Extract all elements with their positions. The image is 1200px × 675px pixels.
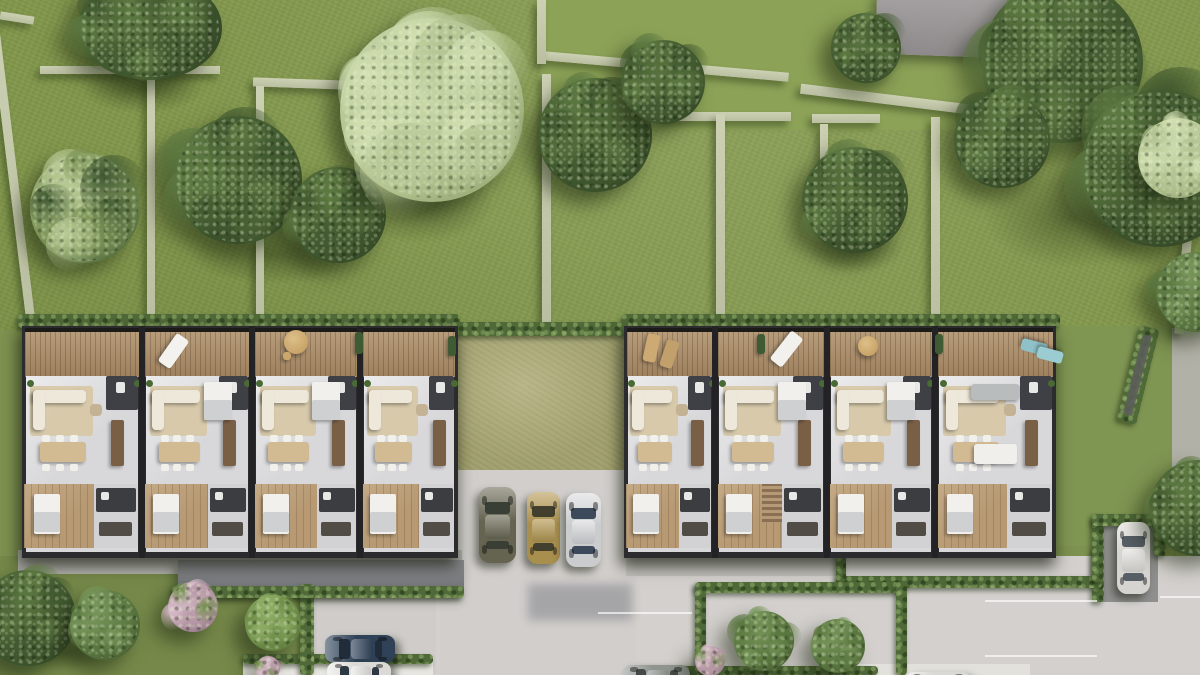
tree-canopy-texture: [804, 149, 906, 251]
tree-canopy-texture: [176, 118, 299, 241]
bed-blanket: [778, 400, 806, 420]
tree: [255, 655, 281, 675]
car-wheel: [593, 502, 598, 511]
sink: [898, 492, 906, 500]
car-wheel: [508, 496, 513, 505]
wardrobe: [896, 522, 926, 536]
tree: [1152, 248, 1200, 336]
dining-chair: [870, 464, 878, 471]
tree: [809, 617, 867, 675]
dining-chair: [70, 464, 78, 471]
block-east: [624, 326, 1056, 558]
dining-table: [732, 442, 775, 462]
dining-chair: [983, 464, 991, 471]
plant: [27, 380, 34, 387]
car-rear-glass: [533, 543, 554, 551]
dining-chair: [956, 435, 964, 442]
sink: [323, 492, 331, 500]
dining-chair: [660, 435, 668, 442]
sink: [425, 492, 433, 500]
wardrobe: [212, 522, 243, 536]
kitchen-island: [223, 420, 236, 466]
car-wheel: [1120, 577, 1125, 586]
sofa-gray: [971, 384, 1019, 400]
terrace-rail: [255, 328, 357, 332]
dining-chair: [173, 435, 181, 442]
stone-wall: [0, 11, 34, 24]
dining-chair: [747, 435, 755, 442]
sofa-chaise: [725, 390, 737, 430]
dining-chair: [186, 435, 194, 442]
pouf: [416, 404, 428, 416]
terrace-rail: [938, 328, 1053, 332]
terrace-deck: [363, 331, 455, 377]
tree: [950, 88, 1054, 192]
plant: [940, 380, 947, 387]
tree: [166, 580, 220, 634]
tree: [731, 608, 797, 674]
dining-table: [40, 442, 86, 462]
terrace-rail: [830, 328, 932, 332]
wardrobe: [321, 522, 351, 536]
tree: [617, 36, 709, 128]
dining-chair: [70, 435, 78, 442]
pouf: [676, 404, 688, 416]
dining-chair: [969, 464, 977, 471]
dining-chair: [283, 464, 291, 471]
sink: [1015, 492, 1023, 500]
hedge: [1092, 548, 1102, 582]
terrace-rail: [718, 328, 824, 332]
kitchen-island: [111, 420, 124, 466]
car-wheel: [593, 549, 598, 558]
dining-chair: [650, 435, 658, 442]
unit: [827, 326, 935, 558]
sink: [215, 492, 223, 500]
car-gold: [527, 492, 560, 564]
car-windshield: [340, 666, 350, 675]
car-wheel: [482, 545, 487, 554]
tree-canopy-texture: [812, 620, 863, 671]
staircase: [762, 484, 782, 522]
bed-blanket: [370, 512, 396, 532]
party-wall: [139, 326, 145, 558]
wardrobe: [99, 522, 133, 536]
plant: [628, 380, 635, 387]
stone-wall: [931, 117, 940, 329]
terrace-rail: [363, 328, 455, 332]
tree-canopy-texture: [1157, 253, 1200, 330]
car-wheel: [508, 545, 513, 554]
paving: [528, 584, 632, 620]
dining-chair: [845, 435, 853, 442]
stone-wall: [537, 0, 546, 64]
dining-chair: [760, 435, 768, 442]
dining-chair: [956, 464, 964, 471]
bed-blanket: [726, 512, 752, 532]
wardrobe: [423, 522, 450, 536]
tree: [1146, 456, 1200, 560]
car-rear-glass: [486, 541, 510, 549]
dining-chair: [388, 435, 396, 442]
hedge: [452, 322, 632, 336]
terrace-deck: [25, 331, 139, 377]
car-wheel: [1143, 577, 1148, 586]
terrace-rail: [25, 328, 139, 332]
car-windshield: [571, 508, 596, 519]
car-roof: [351, 667, 371, 675]
dining-table-white: [974, 444, 1018, 464]
car-gray: [622, 627, 690, 657]
bath-fixture: [695, 382, 704, 393]
dining-chair: [870, 435, 878, 442]
pouf: [1004, 404, 1016, 416]
car-body: [566, 493, 601, 567]
sofa-chaise: [33, 390, 45, 430]
unit: [715, 326, 827, 558]
dining-chair: [295, 435, 303, 442]
sofa-chaise: [369, 390, 381, 430]
bath-fixture: [116, 382, 125, 393]
sofa-chaise: [632, 390, 644, 430]
car-body: [527, 492, 560, 564]
dining-chair: [969, 435, 977, 442]
car-white-1: [327, 626, 391, 654]
tree: [797, 142, 913, 258]
unit: [935, 326, 1056, 558]
bed-blanket: [204, 400, 232, 420]
terrace-table: [858, 336, 878, 356]
bed-blanket: [34, 512, 60, 532]
car-wheel: [674, 667, 682, 671]
car-windshield: [485, 502, 511, 513]
car-windshield: [532, 506, 555, 517]
car-rear-glass: [372, 667, 379, 675]
terrace-deck: [830, 331, 932, 377]
dining-chair: [650, 464, 658, 471]
car-rear-glass: [572, 546, 594, 554]
sink: [101, 492, 109, 500]
party-wall: [932, 326, 938, 558]
car-windshield: [1122, 536, 1145, 547]
stone-wall: [812, 114, 880, 123]
car-wheel: [553, 501, 558, 510]
sofa-chaise: [837, 390, 849, 430]
dining-table: [268, 442, 309, 462]
dining-chair: [42, 435, 50, 442]
parking-line: [985, 655, 1097, 657]
hedge: [695, 582, 907, 593]
car-wheel: [333, 657, 341, 661]
tree: [828, 10, 904, 86]
sofa-chaise: [152, 390, 164, 430]
tree: [243, 593, 303, 653]
tree-canopy-texture: [344, 22, 520, 198]
dining-chair: [388, 464, 396, 471]
dining-chair: [639, 464, 647, 471]
dining-chair: [399, 435, 407, 442]
sofa-chaise: [262, 390, 274, 430]
tree: [25, 148, 145, 268]
wardrobe: [787, 522, 818, 536]
dining-chair: [858, 464, 866, 471]
dining-chair: [42, 464, 50, 471]
dining-chair: [377, 435, 385, 442]
sink: [684, 492, 692, 500]
bath-fixture: [1029, 382, 1038, 393]
sun-lounger: [283, 352, 291, 360]
car-roof: [647, 670, 669, 675]
bed-blanket: [263, 512, 289, 532]
unit: [252, 326, 360, 558]
dining-chair: [161, 435, 169, 442]
dining-table: [638, 442, 673, 462]
courtyard-lawn: [452, 330, 630, 470]
tree: [72, 0, 228, 84]
party-wall: [824, 326, 830, 558]
tree-canopy-texture: [956, 94, 1048, 186]
dining-table: [375, 442, 412, 462]
dining-chair: [56, 435, 64, 442]
tree-canopy-texture: [1152, 462, 1200, 554]
block-west: [22, 326, 458, 558]
car-body: [479, 487, 516, 563]
car-wheel: [569, 549, 574, 558]
dining-chair: [295, 464, 303, 471]
kitchen-island: [907, 420, 920, 466]
dining-chair: [734, 435, 742, 442]
tree-canopy-texture: [32, 155, 138, 261]
dining-chair: [747, 464, 755, 471]
dining-chair: [858, 435, 866, 442]
tree: [332, 10, 532, 210]
terrace-rail: [627, 328, 712, 332]
tree: [1134, 114, 1200, 202]
car-roof: [485, 515, 510, 539]
car-wheel: [569, 502, 574, 511]
kitchen-island: [691, 420, 704, 466]
bath-fixture: [436, 382, 445, 393]
terrace-deck: [718, 331, 824, 377]
car-silver: [566, 493, 601, 567]
pouf: [90, 404, 102, 416]
tree-canopy-texture: [735, 612, 793, 670]
parking-line: [985, 600, 1097, 602]
bed-blanket: [838, 512, 864, 532]
terrace-planter: [448, 336, 456, 356]
plant: [1048, 380, 1055, 387]
terrace-planter: [935, 334, 943, 354]
sofa-chaise: [946, 390, 958, 430]
terrace-rail: [145, 328, 249, 332]
bed-blanket: [633, 512, 659, 532]
bed-blanket: [153, 512, 179, 532]
bed-blanket: [947, 512, 973, 532]
car-roof: [572, 520, 596, 544]
dining-chair: [983, 435, 991, 442]
dining-chair: [660, 464, 668, 471]
dining-chair: [399, 464, 407, 471]
car-wheel: [553, 547, 558, 556]
dining-chair: [845, 464, 853, 471]
dining-chair: [760, 464, 768, 471]
car-wheel: [530, 547, 535, 556]
dining-chair: [377, 464, 385, 471]
sink: [789, 492, 797, 500]
parking-line: [598, 612, 692, 614]
dining-chair: [270, 435, 278, 442]
car-rear-glass: [1123, 573, 1144, 581]
dining-chair: [270, 464, 278, 471]
car-wheel: [378, 657, 386, 661]
unit: [22, 326, 142, 558]
bed-blanket: [887, 400, 915, 420]
parking-line: [1160, 596, 1200, 598]
dining-chair: [56, 464, 64, 471]
dining-chair: [161, 464, 169, 471]
unit: [360, 326, 458, 558]
car-white-2: [905, 636, 971, 666]
aerial-site-render: [0, 0, 1200, 675]
wardrobe: [1012, 522, 1046, 536]
car-body: [622, 665, 690, 675]
plant: [451, 380, 458, 387]
car-olive: [479, 487, 516, 563]
stone-wall: [147, 70, 155, 322]
party-wall: [712, 326, 718, 558]
car-darkblue: [325, 593, 395, 621]
tree: [67, 587, 143, 663]
wardrobe: [682, 522, 707, 536]
tree-canopy-texture: [169, 583, 217, 631]
car-wheel: [482, 496, 487, 505]
party-wall: [357, 326, 363, 558]
car-body: [327, 662, 391, 675]
dining-chair: [639, 435, 647, 442]
car-roof: [1122, 549, 1144, 572]
dining-chair: [283, 435, 291, 442]
party-wall: [249, 326, 255, 558]
car-roof: [532, 519, 554, 542]
plant: [364, 380, 371, 387]
terrace-planter: [355, 332, 363, 354]
dining-chair: [173, 464, 181, 471]
dining-table: [843, 442, 884, 462]
tree: [694, 645, 726, 675]
kitchen-island: [1025, 420, 1038, 466]
kitchen-island: [798, 420, 811, 466]
terrace-table: [284, 330, 308, 354]
car-wheel: [376, 664, 384, 668]
dining-chair: [734, 464, 742, 471]
kitchen-island: [433, 420, 446, 466]
dining-table: [159, 442, 201, 462]
kitchen-island: [332, 420, 345, 466]
terrace-planter: [757, 334, 765, 354]
car-wheel: [630, 667, 638, 671]
bed-blanket: [312, 400, 340, 420]
tree-canopy-texture: [696, 647, 724, 675]
stone-wall: [716, 114, 725, 324]
dining-chair: [186, 464, 194, 471]
